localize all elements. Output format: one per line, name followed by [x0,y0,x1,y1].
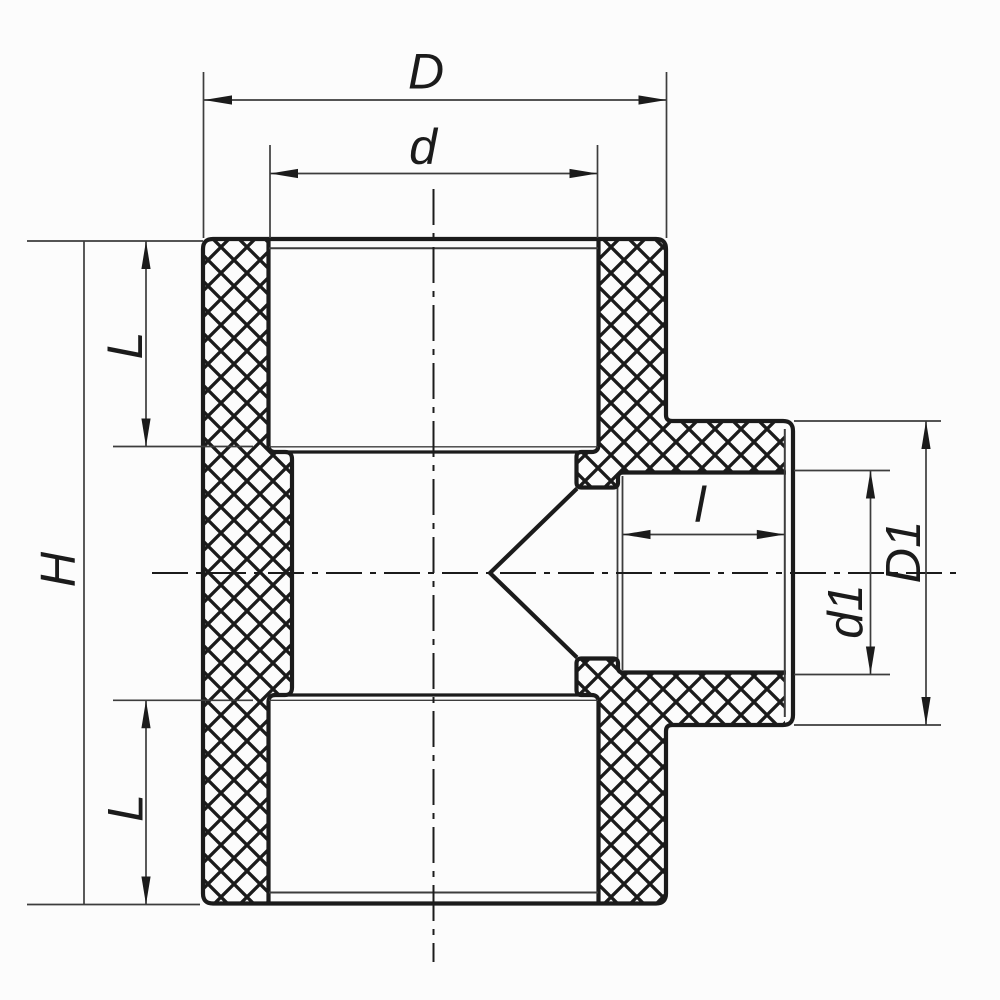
svg-text:L: L [98,794,154,822]
svg-text:D1: D1 [877,521,931,584]
svg-text:H: H [32,551,86,587]
svg-text:d1: d1 [819,584,873,639]
svg-text:L: L [97,332,153,360]
svg-text:l: l [694,477,707,533]
svg-text:D: D [408,44,444,100]
svg-text:d: d [409,119,439,175]
